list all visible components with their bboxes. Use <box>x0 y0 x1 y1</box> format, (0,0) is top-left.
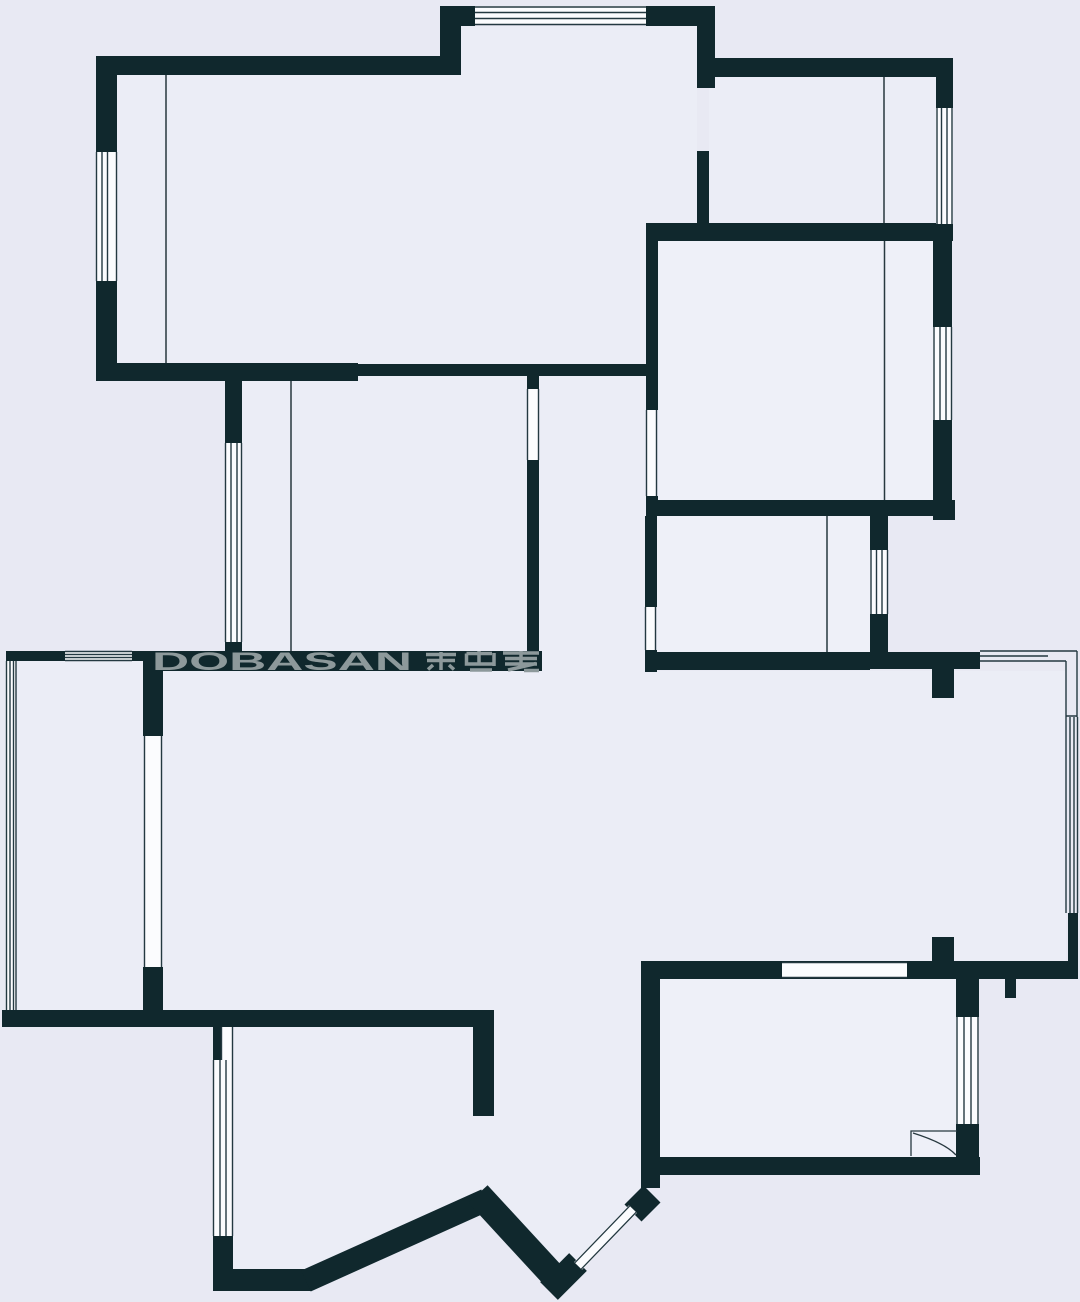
svg-text:DOBASAN: DOBASAN <box>152 648 412 676</box>
